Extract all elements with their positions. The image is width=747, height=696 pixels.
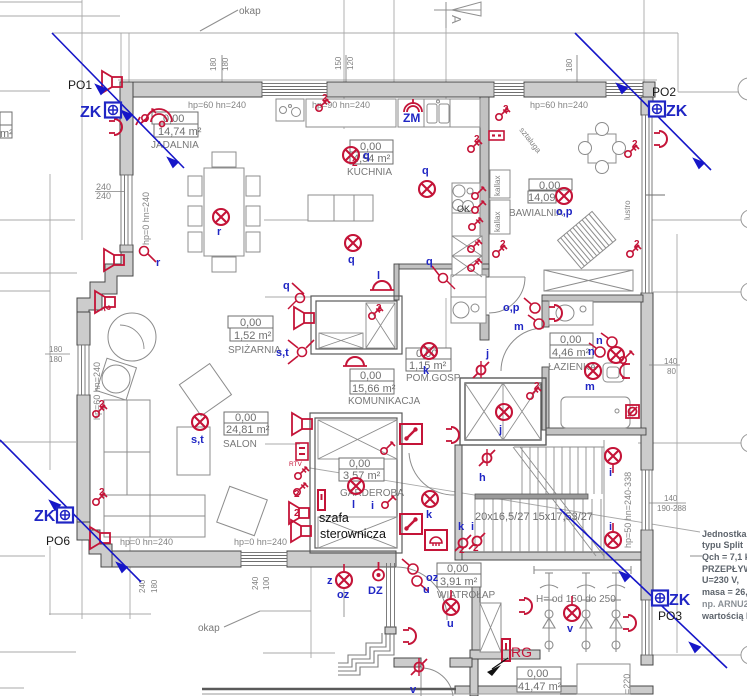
svg-text:140: 140 (664, 494, 678, 503)
svg-text:=220: =220 (622, 674, 632, 694)
svg-text:i: i (471, 521, 474, 533)
svg-text:RTV: RTV (289, 461, 303, 468)
svg-text:2: 2 (634, 239, 640, 250)
svg-text:ZK: ZK (666, 103, 688, 120)
svg-text:180: 180 (221, 57, 230, 71)
svg-text:np. ARNU24G: np. ARNU24G (702, 599, 747, 609)
svg-text:2: 2 (473, 543, 479, 554)
svg-text:hp=60 hn=240: hp=60 hn=240 (188, 100, 246, 110)
svg-text:240: 240 (96, 191, 111, 201)
svg-text:l: l (352, 499, 355, 511)
svg-text:typu Split: typu Split (702, 540, 743, 550)
svg-text:U=230 V,: U=230 V, (702, 575, 739, 585)
svg-text:1,52 m²: 1,52 m² (234, 330, 272, 342)
svg-text:m²: m² (0, 128, 13, 140)
svg-text:s,t: s,t (276, 347, 289, 359)
svg-text:okap: okap (198, 623, 220, 634)
svg-text:SALON: SALON (223, 439, 257, 450)
svg-text:lustro: lustro (623, 200, 632, 220)
svg-text:q: q (426, 256, 433, 268)
svg-text:szafa: szafa (319, 511, 349, 525)
svg-text:o,p: o,p (503, 302, 520, 314)
svg-text:0,00: 0,00 (527, 668, 548, 680)
svg-text:2: 2 (322, 93, 328, 104)
svg-text:2: 2 (534, 381, 540, 392)
svg-text:Qch = 7,1 kW: Qch = 7,1 kW (702, 552, 747, 562)
svg-text:l: l (377, 270, 380, 282)
svg-text:2: 2 (376, 303, 382, 314)
svg-text:ZK: ZK (80, 104, 102, 121)
svg-text:0,00: 0,00 (235, 412, 256, 424)
svg-text:q: q (422, 165, 429, 177)
svg-text:PRZEPŁYW N: PRZEPŁYW N (702, 564, 747, 574)
svg-text:i: i (609, 467, 612, 479)
svg-text:A: A (449, 15, 464, 24)
svg-text:k: k (423, 365, 430, 377)
svg-text:0,00: 0,00 (560, 334, 581, 346)
svg-text:okap: okap (239, 6, 261, 17)
svg-text:hp=0 hn=240: hp=0 hn=240 (141, 192, 151, 245)
svg-text:oz: oz (337, 589, 350, 601)
svg-text:180: 180 (209, 57, 218, 71)
svg-text:80: 80 (667, 367, 676, 376)
svg-text:m: m (514, 321, 524, 333)
svg-text:r: r (156, 257, 161, 269)
svg-text:100: 100 (262, 576, 271, 590)
svg-text:v: v (410, 684, 417, 696)
svg-text:180: 180 (49, 355, 63, 364)
svg-text:PO1: PO1 (68, 78, 92, 92)
svg-text:wartością ESP: wartością ESP (701, 611, 747, 621)
svg-text:0,00: 0,00 (349, 458, 370, 470)
svg-text:2: 2 (352, 158, 358, 169)
svg-text:kallax: kallax (493, 176, 502, 196)
svg-text:PO3: PO3 (658, 609, 682, 623)
svg-text:hp=0 hn=240: hp=0 hn=240 (120, 537, 173, 547)
svg-text:hp=60 hn=240: hp=60 hn=240 (530, 100, 588, 110)
svg-text:24,81 m²: 24,81 m² (226, 424, 270, 436)
svg-text:180: 180 (49, 345, 63, 354)
svg-text:hp=50 hn=240-338: hp=50 hn=240-338 (623, 472, 633, 548)
svg-text:q: q (283, 280, 290, 292)
svg-text:0,00: 0,00 (360, 370, 381, 382)
svg-text:n: n (588, 346, 595, 358)
svg-text:2: 2 (294, 508, 300, 519)
svg-text:POM.GOSP: POM.GOSP (406, 373, 461, 384)
svg-text:3,91 m²: 3,91 m² (440, 576, 478, 588)
svg-text:KOMUNIKACJA: KOMUNIKACJA (348, 396, 421, 407)
svg-text:180: 180 (565, 58, 574, 72)
svg-text:r: r (217, 226, 222, 238)
svg-text:2: 2 (474, 134, 480, 145)
svg-text:u: u (423, 584, 430, 596)
svg-text:j: j (485, 348, 489, 360)
svg-text:RG: RG (511, 644, 532, 660)
svg-text:2: 2 (632, 139, 638, 150)
svg-text:u: u (447, 618, 454, 630)
svg-text:s,t: s,t (191, 434, 204, 446)
svg-text:ZK: ZK (669, 592, 691, 609)
svg-text:2: 2 (503, 104, 509, 115)
svg-text:180: 180 (150, 579, 159, 593)
svg-text:4,46 m²: 4,46 m² (552, 347, 590, 359)
svg-text:190-288: 190-288 (657, 504, 687, 513)
svg-text:j: j (498, 424, 502, 436)
svg-text:0,00: 0,00 (447, 563, 468, 575)
svg-text:41,47 m²: 41,47 m² (518, 681, 562, 693)
svg-text:z: z (327, 575, 333, 587)
svg-text:20x16,5/27 15x17,53/27: 20x16,5/27 15x17,53/27 (475, 511, 593, 523)
svg-text:240: 240 (251, 576, 260, 590)
svg-text:oz: oz (426, 572, 439, 584)
svg-text:0,00: 0,00 (240, 317, 261, 329)
svg-text:ZK: ZK (34, 508, 56, 525)
svg-text:k: k (426, 509, 433, 521)
svg-text:Jednostka we: Jednostka we (702, 529, 747, 539)
svg-text:sterownicza: sterownicza (320, 527, 386, 541)
svg-text:120: 120 (346, 56, 355, 70)
svg-text:2: 2 (500, 239, 506, 250)
svg-text:q: q (363, 150, 370, 162)
svg-text:2: 2 (99, 399, 105, 410)
svg-text:o,p: o,p (556, 206, 573, 218)
svg-text:h: h (479, 472, 486, 484)
svg-text:k: k (458, 521, 465, 533)
svg-text:i: i (371, 500, 374, 512)
svg-text:PO6: PO6 (46, 534, 70, 548)
svg-text:15,66 m²: 15,66 m² (352, 383, 396, 395)
svg-text:DZ: DZ (368, 585, 383, 597)
svg-text:150: 150 (334, 56, 343, 70)
svg-text:kallax: kallax (493, 212, 502, 232)
svg-text:masa = 26,5: masa = 26,5 (702, 587, 747, 597)
svg-text:ZM: ZM (403, 111, 420, 125)
svg-text:14,74 m²: 14,74 m² (158, 126, 202, 138)
svg-text:14,09: 14,09 (528, 192, 556, 204)
svg-text:hp=0 hn=240: hp=0 hn=240 (234, 537, 287, 547)
svg-text:OK: OK (457, 204, 470, 214)
svg-text:SPIŻARNIA: SPIŻARNIA (228, 343, 281, 356)
svg-text:2: 2 (99, 487, 105, 498)
svg-text:2: 2 (294, 489, 300, 500)
svg-text:n: n (596, 335, 603, 347)
svg-text:H= od 150 do 250: H= od 150 do 250 (536, 594, 616, 605)
svg-text:WIATROŁAP: WIATROŁAP (437, 590, 495, 601)
svg-text:m: m (585, 381, 595, 393)
svg-text:2: 2 (459, 545, 465, 556)
svg-text:v: v (567, 623, 574, 635)
svg-text:PO2: PO2 (652, 85, 676, 99)
svg-text:q: q (348, 254, 355, 266)
svg-text:i: i (609, 521, 612, 533)
